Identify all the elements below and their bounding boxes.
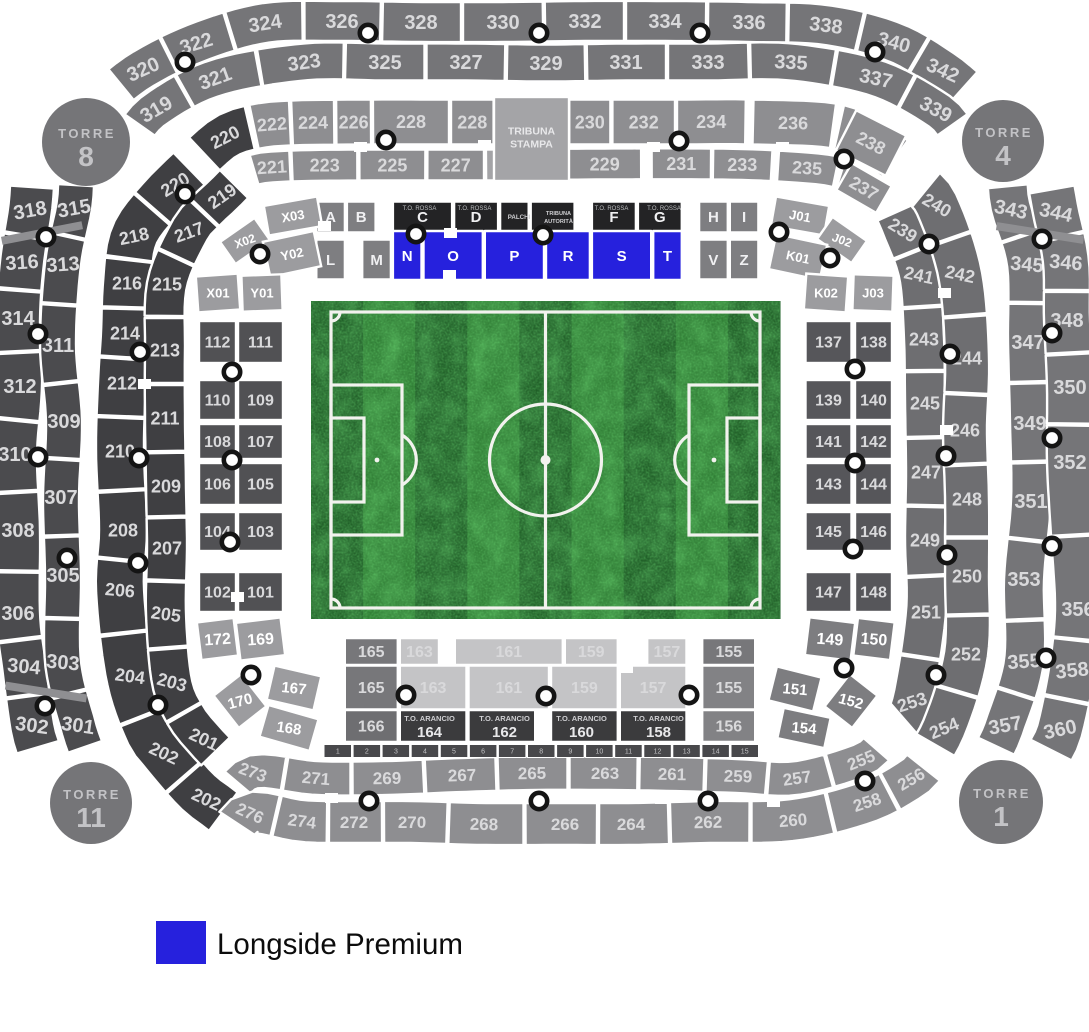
svg-text:228: 228 [396, 112, 426, 132]
svg-text:251: 251 [911, 602, 941, 622]
svg-text:138: 138 [860, 335, 887, 352]
svg-text:347: 347 [1011, 332, 1044, 354]
svg-text:265: 265 [518, 764, 547, 783]
svg-text:6: 6 [481, 749, 485, 756]
svg-text:O: O [447, 248, 459, 265]
svg-text:329: 329 [529, 53, 562, 75]
svg-text:1: 1 [993, 801, 1009, 832]
svg-text:X01: X01 [206, 286, 229, 301]
svg-text:11: 11 [625, 749, 632, 756]
svg-text:257: 257 [782, 767, 813, 790]
svg-text:166: 166 [358, 719, 385, 736]
svg-text:TORRE: TORRE [973, 786, 1031, 801]
svg-text:B: B [356, 209, 367, 226]
svg-text:101: 101 [247, 585, 274, 602]
svg-text:157: 157 [640, 680, 667, 697]
svg-text:249: 249 [910, 530, 940, 550]
svg-text:333: 333 [691, 52, 724, 74]
svg-text:272: 272 [340, 813, 368, 832]
svg-text:211: 211 [150, 408, 179, 428]
svg-text:R: R [563, 248, 574, 265]
svg-text:227: 227 [441, 155, 471, 175]
svg-text:326: 326 [325, 11, 358, 33]
svg-text:149: 149 [816, 631, 844, 650]
svg-text:246: 246 [950, 420, 980, 440]
svg-text:310: 310 [0, 444, 32, 466]
svg-text:4: 4 [995, 140, 1011, 171]
svg-text:13: 13 [683, 749, 691, 756]
svg-text:207: 207 [152, 538, 182, 558]
svg-text:303: 303 [45, 651, 80, 676]
svg-text:313: 313 [46, 253, 81, 277]
svg-text:269: 269 [373, 769, 402, 788]
svg-text:165: 165 [358, 644, 385, 661]
svg-text:12: 12 [654, 749, 662, 756]
svg-text:234: 234 [696, 112, 726, 132]
svg-text:332: 332 [568, 11, 601, 33]
svg-text:323: 323 [286, 50, 322, 76]
svg-text:102: 102 [204, 585, 231, 602]
svg-text:4: 4 [423, 749, 427, 756]
svg-text:Z: Z [740, 252, 749, 269]
svg-text:349: 349 [1013, 413, 1046, 435]
svg-text:213: 213 [150, 340, 180, 360]
svg-text:312: 312 [3, 376, 36, 398]
svg-text:T: T [663, 248, 672, 265]
svg-text:15: 15 [741, 749, 749, 756]
svg-text:8: 8 [539, 749, 543, 756]
svg-text:264: 264 [617, 815, 646, 834]
svg-text:336: 336 [732, 12, 766, 35]
svg-text:355: 355 [1007, 650, 1042, 674]
svg-text:358: 358 [1054, 658, 1089, 683]
svg-text:204: 204 [114, 664, 147, 688]
svg-text:167: 167 [281, 679, 308, 699]
svg-text:307: 307 [44, 487, 77, 509]
svg-text:206: 206 [104, 579, 136, 602]
svg-text:268: 268 [470, 815, 499, 834]
svg-text:309: 309 [47, 411, 80, 433]
svg-text:247: 247 [911, 462, 941, 482]
svg-text:162: 162 [492, 724, 517, 741]
svg-text:M: M [370, 252, 383, 269]
svg-text:216: 216 [112, 273, 142, 293]
svg-text:334: 334 [648, 11, 682, 33]
svg-text:157: 157 [654, 644, 681, 661]
svg-text:270: 270 [398, 813, 426, 832]
svg-text:P: P [509, 248, 519, 265]
svg-text:107: 107 [247, 434, 274, 451]
svg-text:232: 232 [629, 112, 659, 132]
svg-text:260: 260 [778, 810, 808, 831]
svg-text:148: 148 [860, 585, 887, 602]
svg-text:235: 235 [791, 157, 822, 179]
svg-text:154: 154 [791, 719, 818, 738]
svg-text:266: 266 [551, 815, 579, 834]
svg-text:PALCHI: PALCHI [508, 214, 531, 221]
svg-text:108: 108 [204, 434, 231, 451]
svg-text:1: 1 [336, 749, 340, 756]
svg-text:V: V [708, 252, 718, 269]
svg-text:TORRE: TORRE [58, 126, 116, 141]
svg-text:301: 301 [60, 713, 96, 739]
svg-text:9: 9 [568, 749, 572, 756]
svg-text:142: 142 [860, 434, 887, 451]
svg-text:144: 144 [860, 477, 887, 494]
svg-text:209: 209 [151, 476, 181, 496]
svg-text:330: 330 [486, 12, 519, 34]
svg-text:169: 169 [247, 631, 275, 650]
svg-text:111: 111 [248, 335, 273, 352]
svg-text:252: 252 [951, 644, 981, 664]
svg-text:145: 145 [815, 524, 842, 541]
svg-text:N: N [402, 248, 413, 265]
svg-text:161: 161 [495, 680, 522, 697]
svg-text:243: 243 [909, 329, 939, 349]
svg-text:225: 225 [377, 155, 407, 175]
svg-text:140: 140 [860, 393, 887, 410]
svg-text:306: 306 [1, 603, 34, 625]
svg-text:5: 5 [452, 749, 456, 756]
svg-text:223: 223 [310, 156, 340, 176]
svg-text:261: 261 [658, 765, 687, 784]
svg-text:146: 146 [860, 524, 887, 541]
svg-text:214: 214 [110, 323, 140, 343]
svg-text:304: 304 [6, 655, 42, 680]
svg-text:346: 346 [1048, 251, 1083, 276]
svg-text:T.O. ROSSA: T.O. ROSSA [403, 206, 437, 212]
svg-text:212: 212 [107, 373, 137, 393]
svg-text:345: 345 [1009, 253, 1044, 278]
svg-text:156: 156 [715, 719, 742, 736]
svg-text:8: 8 [78, 141, 94, 172]
svg-text:143: 143 [815, 477, 842, 494]
svg-text:314: 314 [1, 308, 35, 330]
svg-text:305: 305 [46, 565, 79, 587]
svg-text:271: 271 [301, 768, 331, 789]
svg-text:274: 274 [287, 810, 318, 833]
svg-text:137: 137 [815, 335, 842, 352]
svg-text:338: 338 [808, 13, 844, 39]
svg-text:325: 325 [368, 52, 402, 74]
svg-text:262: 262 [694, 813, 723, 833]
svg-text:172: 172 [204, 631, 232, 650]
svg-text:159: 159 [578, 644, 605, 661]
svg-text:356: 356 [1061, 599, 1089, 621]
svg-text:302: 302 [14, 713, 50, 739]
svg-text:327: 327 [449, 52, 482, 74]
svg-text:Y01: Y01 [250, 286, 273, 301]
svg-text:226: 226 [339, 112, 369, 132]
svg-text:228: 228 [457, 112, 487, 132]
svg-text:222: 222 [256, 113, 287, 135]
svg-text:STAMPA: STAMPA [510, 139, 553, 151]
svg-text:105: 105 [247, 477, 274, 494]
svg-text:150: 150 [860, 631, 888, 650]
svg-text:221: 221 [256, 156, 287, 178]
svg-text:229: 229 [590, 154, 620, 174]
svg-text:T.O. ROSSA: T.O. ROSSA [647, 206, 681, 212]
svg-text:T.O. ARANCIO: T.O. ARANCIO [404, 714, 455, 723]
svg-text:147: 147 [815, 585, 842, 602]
svg-text:T.O. ARANCIO: T.O. ARANCIO [479, 714, 530, 723]
svg-text:H: H [708, 209, 719, 226]
svg-text:331: 331 [609, 52, 642, 74]
svg-text:10: 10 [596, 749, 604, 756]
svg-text:350: 350 [1053, 377, 1086, 399]
svg-text:267: 267 [448, 766, 477, 786]
svg-text:351: 351 [1014, 491, 1047, 513]
svg-text:163: 163 [406, 644, 433, 661]
svg-text:163: 163 [420, 680, 447, 697]
svg-text:TRIBUNA: TRIBUNA [546, 211, 571, 217]
svg-text:250: 250 [952, 566, 982, 586]
svg-text:139: 139 [815, 393, 842, 410]
svg-text:160: 160 [569, 724, 594, 741]
svg-text:151: 151 [782, 680, 808, 699]
svg-text:J03: J03 [862, 286, 884, 301]
svg-text:236: 236 [778, 113, 808, 134]
svg-text:158: 158 [646, 724, 671, 741]
svg-text:AUTORITÀ: AUTORITÀ [544, 218, 573, 225]
svg-text:165: 165 [358, 680, 385, 697]
svg-text:335: 335 [774, 51, 809, 75]
svg-text:K02: K02 [814, 286, 838, 301]
svg-text:141: 141 [815, 434, 842, 451]
svg-text:TORRE: TORRE [63, 787, 121, 802]
svg-text:14: 14 [712, 749, 720, 756]
svg-text:I: I [742, 209, 746, 226]
svg-text:168: 168 [275, 719, 302, 739]
svg-text:248: 248 [952, 489, 982, 509]
svg-text:11: 11 [76, 802, 106, 833]
svg-text:245: 245 [910, 393, 940, 413]
svg-text:159: 159 [571, 680, 598, 697]
svg-text:T.O. ROSSA: T.O. ROSSA [595, 206, 629, 212]
svg-text:263: 263 [591, 764, 619, 783]
svg-text:2: 2 [365, 749, 369, 756]
svg-text:T.O. ARANCIO: T.O. ARANCIO [556, 714, 607, 723]
svg-text:T.O. ROSSA: T.O. ROSSA [458, 206, 492, 212]
svg-text:215: 215 [152, 274, 182, 294]
svg-text:205: 205 [150, 602, 183, 626]
svg-text:L: L [326, 252, 335, 269]
svg-text:110: 110 [205, 393, 231, 410]
svg-text:112: 112 [205, 335, 231, 352]
svg-text:7: 7 [510, 749, 514, 756]
svg-text:TRIBUNA: TRIBUNA [508, 126, 556, 138]
svg-text:308: 308 [1, 520, 34, 542]
svg-text:T.O. ARANCIO: T.O. ARANCIO [633, 714, 684, 723]
svg-text:106: 106 [204, 477, 231, 494]
svg-text:259: 259 [724, 767, 753, 787]
svg-text:224: 224 [298, 112, 328, 132]
svg-text:Longside Premium: Longside Premium [217, 928, 463, 961]
svg-text:164: 164 [417, 724, 443, 741]
svg-text:155: 155 [715, 644, 742, 661]
svg-text:316: 316 [5, 251, 40, 275]
svg-text:TORRE: TORRE [975, 125, 1033, 140]
svg-text:328: 328 [404, 12, 437, 34]
svg-text:161: 161 [495, 644, 522, 661]
svg-text:109: 109 [247, 393, 274, 410]
svg-text:103: 103 [247, 524, 274, 541]
svg-text:231: 231 [666, 154, 696, 174]
svg-text:155: 155 [715, 680, 742, 697]
svg-text:230: 230 [575, 112, 605, 132]
svg-text:208: 208 [108, 520, 138, 540]
svg-text:S: S [617, 248, 627, 265]
svg-text:353: 353 [1007, 569, 1040, 591]
svg-text:233: 233 [727, 155, 757, 175]
svg-text:352: 352 [1053, 452, 1086, 474]
svg-text:3: 3 [394, 749, 398, 756]
